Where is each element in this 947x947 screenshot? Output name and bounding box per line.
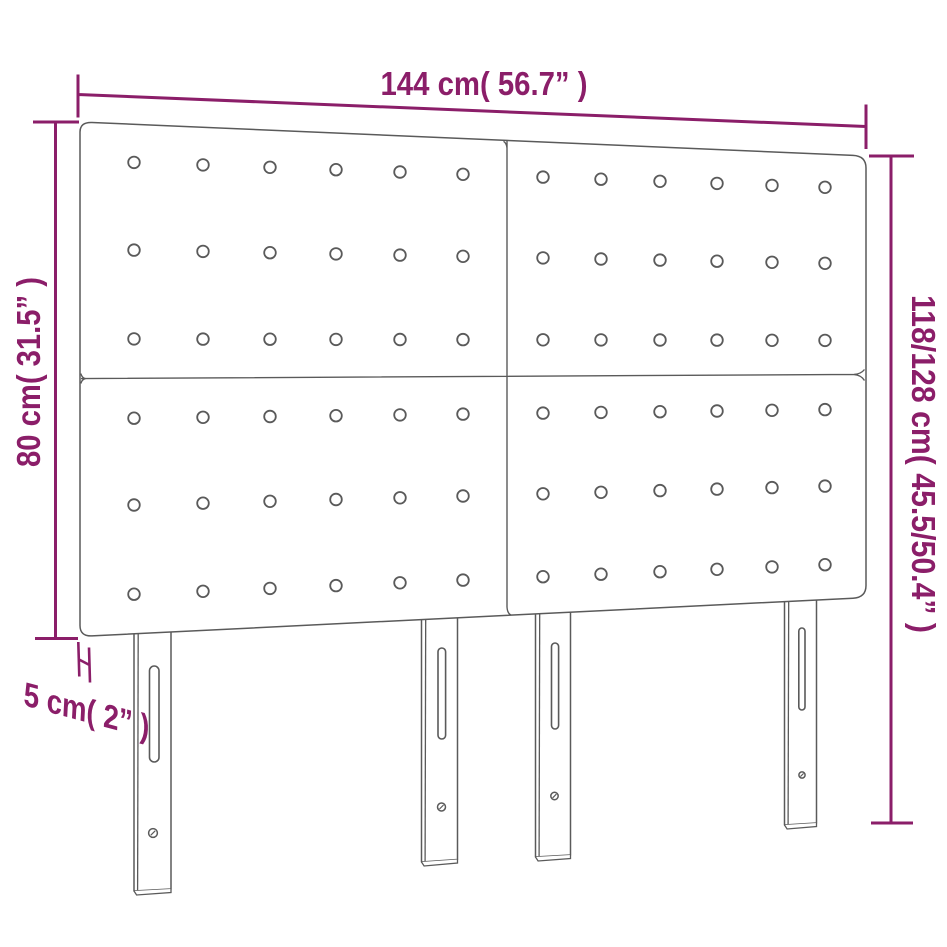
- svg-text:118/128 cm( 45.5/50.4” ): 118/128 cm( 45.5/50.4” ): [905, 295, 942, 633]
- svg-text:80 cm( 31.5” ): 80 cm( 31.5” ): [10, 277, 47, 467]
- svg-text:5 cm( 2” ): 5 cm( 2” ): [23, 676, 151, 747]
- svg-text:144 cm( 56.7” ): 144 cm( 56.7” ): [381, 65, 588, 102]
